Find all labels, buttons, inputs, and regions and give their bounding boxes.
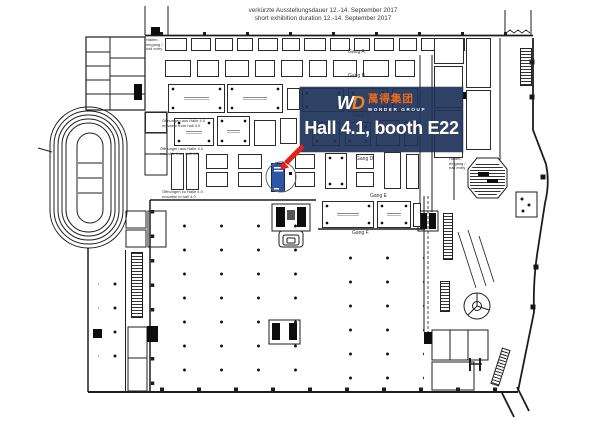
floorplan-screenshot: verkürzte Ausstellungsdauer 12.-14. Sept… <box>0 0 600 422</box>
pointer-layer <box>0 0 600 422</box>
pointer-arrow-shaft <box>286 146 303 163</box>
